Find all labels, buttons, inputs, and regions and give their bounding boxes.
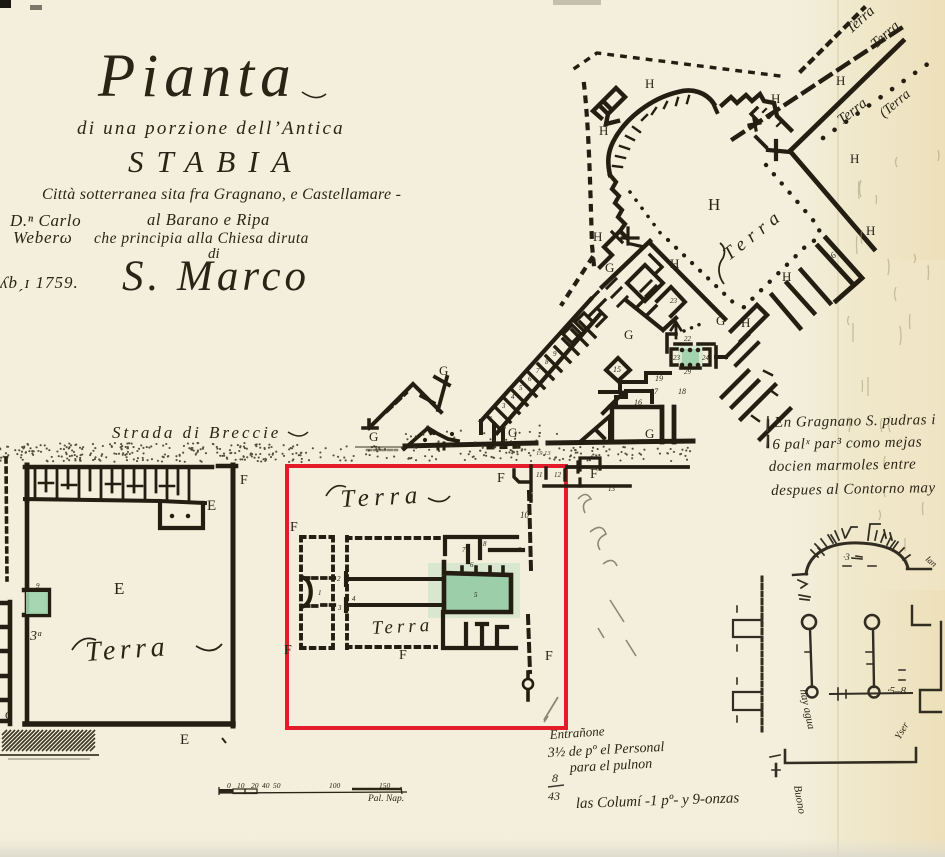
- svg-text:8: 8: [545, 358, 549, 366]
- svg-text:H: H: [670, 256, 679, 271]
- svg-text:che principia alla Chiesa diru: che principia alla Chiesa diruta: [94, 230, 309, 247]
- svg-text:G: G: [605, 260, 614, 275]
- svg-text:G: G: [716, 313, 725, 328]
- svg-text:2: 2: [337, 575, 341, 583]
- svg-text:Pal. Nap.: Pal. Nap.: [367, 794, 404, 804]
- svg-text:15: 15: [613, 365, 621, 374]
- svg-text:G: G: [439, 363, 448, 378]
- svg-text:H: H: [599, 123, 608, 138]
- svg-text:F: F: [284, 643, 292, 658]
- svg-text:G: G: [645, 426, 654, 441]
- svg-text:E: E: [207, 498, 216, 514]
- svg-text:H: H: [645, 76, 654, 91]
- svg-text:4: 4: [352, 595, 356, 603]
- svg-text:11: 11: [536, 471, 542, 479]
- svg-text:3: 3: [337, 604, 342, 612]
- svg-text:6 palˣ par³ como mejas: 6 palˣ par³ como mejas: [772, 434, 922, 453]
- svg-text:H: H: [836, 73, 845, 88]
- svg-text:docien marmoles entre: docien marmoles entre: [769, 456, 917, 475]
- svg-text:19: 19: [655, 374, 663, 383]
- svg-text:29: 29: [684, 368, 692, 376]
- svg-text:43: 43: [548, 789, 560, 803]
- svg-text:al Barano e Ripa: al Barano e Ripa: [147, 210, 270, 229]
- svg-text:20: 20: [251, 781, 259, 790]
- svg-text:di una porzione dell’Antica: di una porzione dell’Antica: [77, 118, 345, 139]
- svg-text:⋅5–8: ⋅5–8: [886, 685, 906, 697]
- svg-text:H: H: [850, 151, 859, 166]
- svg-text:13: 13: [608, 485, 616, 493]
- svg-text:8: 8: [552, 771, 558, 785]
- svg-text:C: C: [5, 710, 12, 722]
- svg-text:40: 40: [262, 781, 270, 790]
- svg-text:G: G: [369, 429, 378, 444]
- svg-text:4: 4: [511, 393, 515, 401]
- svg-text:22: 22: [684, 335, 692, 343]
- svg-text:1: 1: [318, 589, 322, 597]
- svg-text:H: H: [866, 223, 875, 238]
- svg-text:F: F: [497, 471, 505, 486]
- svg-text:H: H: [708, 195, 720, 214]
- svg-text:G: G: [624, 327, 633, 342]
- svg-text:8: 8: [483, 540, 487, 548]
- svg-text:E: E: [180, 732, 189, 748]
- svg-text:23: 23: [673, 354, 681, 362]
- svg-text:12: 12: [554, 471, 562, 479]
- svg-text:16: 16: [634, 398, 642, 407]
- svg-text:Strada di Breccie: Strada di Breccie: [112, 423, 281, 442]
- svg-text:5: 5: [474, 591, 478, 599]
- svg-text:F: F: [240, 473, 248, 488]
- svg-text:H: H: [771, 91, 780, 106]
- svg-text:E: E: [114, 579, 124, 598]
- svg-text:10: 10: [237, 781, 245, 790]
- svg-text:24: 24: [702, 354, 710, 362]
- svg-text:F: F: [399, 648, 407, 663]
- svg-text:9: 9: [36, 582, 40, 590]
- svg-text:7: 7: [536, 367, 540, 375]
- svg-text:·3: ·3: [843, 552, 850, 562]
- svg-text:17: 17: [650, 387, 659, 396]
- svg-text:10: 10: [520, 510, 530, 520]
- svg-text:3: 3: [501, 402, 506, 410]
- svg-text:despues al Contorno may: despues al Contorno may: [771, 480, 936, 499]
- svg-text:S. Marco: S. Marco: [122, 253, 310, 300]
- svg-text:9: 9: [553, 350, 557, 358]
- svg-text:18: 18: [678, 387, 686, 396]
- svg-text:Città sotterranea sita fra Gra: Città sotterranea sita fra Gragnano, e C…: [42, 186, 401, 203]
- svg-text:9: 9: [518, 546, 522, 554]
- svg-text:1: 1: [489, 415, 493, 423]
- svg-text:6: 6: [528, 375, 532, 383]
- svg-text:ʎbˏɪ 1759.: ʎbˏɪ 1759.: [0, 273, 79, 292]
- svg-text:23: 23: [670, 297, 678, 305]
- svg-text:7: 7: [462, 546, 466, 554]
- svg-text:F: F: [290, 520, 298, 535]
- svg-text:Pianta: Pianta: [97, 43, 297, 110]
- svg-text:5: 5: [519, 384, 523, 392]
- svg-text:3ᵃ: 3ᵃ: [29, 629, 43, 644]
- svg-text:6: 6: [470, 561, 474, 569]
- svg-text:F: F: [545, 649, 553, 664]
- svg-text:Weberω: Weberω: [13, 228, 73, 247]
- svg-text:F: F: [590, 467, 598, 482]
- svg-text:STABIA: STABIA: [128, 144, 304, 179]
- svg-text:100: 100: [329, 781, 341, 790]
- svg-text:Terra: Terra: [340, 482, 423, 513]
- svg-text:H: H: [593, 229, 602, 244]
- svg-text:0: 0: [227, 781, 231, 790]
- svg-text:Terra: Terra: [84, 631, 170, 668]
- svg-text:50: 50: [273, 781, 281, 790]
- svg-text:150: 150: [379, 781, 391, 790]
- svg-text:Terra: Terra: [371, 615, 434, 639]
- svg-text:En Gragnano S. pudras i: En Gragnano S. pudras i: [773, 412, 936, 431]
